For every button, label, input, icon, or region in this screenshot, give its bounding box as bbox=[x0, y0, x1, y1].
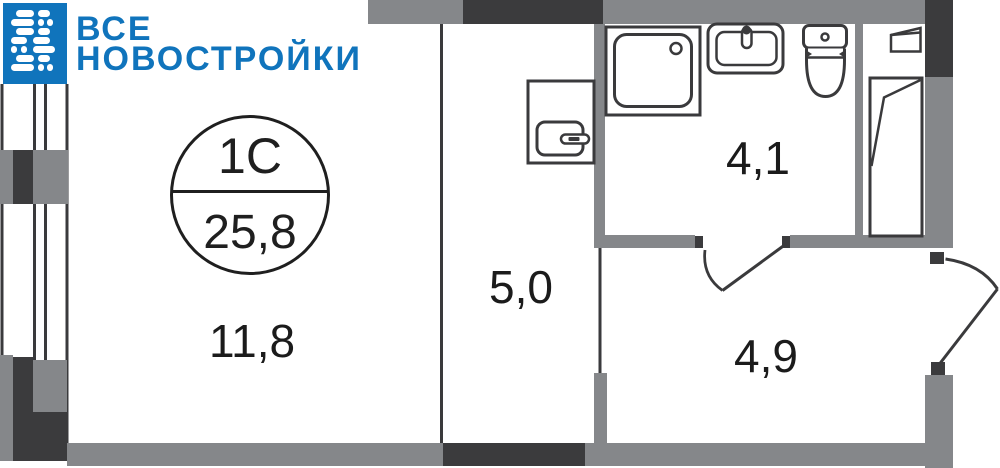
brand-name-line2: НОВОСТРОЙКИ bbox=[76, 44, 362, 74]
wall-segment bbox=[594, 373, 607, 443]
apartment-total-area: 25,8 bbox=[173, 193, 327, 272]
door-jamb bbox=[930, 252, 944, 264]
door-arc bbox=[946, 259, 998, 289]
wall-segment bbox=[603, 0, 925, 24]
door-arc bbox=[705, 250, 723, 291]
wall-segment bbox=[33, 150, 68, 204]
building-logo-icon bbox=[3, 3, 67, 84]
wall-segment bbox=[13, 150, 33, 204]
room-door-swing-icon bbox=[705, 244, 786, 291]
wall-corner-block bbox=[925, 0, 953, 77]
wardrobe-doors-icon bbox=[870, 28, 922, 236]
washbasin-icon bbox=[708, 24, 783, 73]
room-area-living: 11,8 bbox=[209, 314, 295, 368]
entrance-door-swing-icon bbox=[940, 259, 998, 364]
toilet-icon bbox=[804, 26, 847, 97]
door-panel bbox=[891, 28, 921, 52]
wall-segment bbox=[594, 24, 605, 248]
cabinet-faucet-handle bbox=[569, 137, 580, 141]
apartment-type-label: 1С bbox=[173, 118, 327, 190]
toilet-bowl bbox=[807, 49, 845, 97]
wall-segment bbox=[585, 443, 925, 466]
wall-segment bbox=[463, 0, 603, 24]
right-wall bbox=[925, 77, 953, 468]
door-jamb bbox=[931, 362, 945, 375]
room-area-bathroom: 4,1 bbox=[726, 131, 790, 185]
sink-cabinet-icon bbox=[528, 81, 594, 163]
wall-segment bbox=[855, 24, 863, 235]
wall-segment bbox=[925, 375, 953, 468]
wall-segment bbox=[13, 357, 33, 461]
room-area-entry: 4,9 bbox=[734, 329, 798, 383]
faucet-base bbox=[742, 26, 751, 35]
door-jamb bbox=[695, 236, 703, 248]
wall-segment bbox=[0, 150, 13, 204]
wall-segment bbox=[368, 0, 463, 24]
toilet-button bbox=[822, 34, 829, 41]
door-leaf bbox=[940, 289, 998, 364]
door-panel bbox=[870, 78, 922, 236]
shower-drain bbox=[671, 43, 682, 54]
wall-segment bbox=[594, 235, 695, 248]
wall-segment bbox=[0, 355, 13, 461]
door-leaf bbox=[723, 244, 787, 291]
apartment-badge: 1С 25,8 bbox=[170, 115, 330, 275]
floorplan-page: ВСЕ НОВОСТРОЙКИ 1С 25,8 11,8 5,0 4,1 4,9 bbox=[0, 0, 1000, 468]
wall-segment bbox=[33, 360, 67, 412]
wall-segment bbox=[925, 77, 953, 248]
wall-segment bbox=[33, 412, 67, 461]
shower-tray-icon bbox=[606, 27, 700, 115]
wall-segment bbox=[443, 443, 585, 466]
wall-segment bbox=[67, 443, 443, 466]
bottom-wall bbox=[67, 443, 925, 466]
room-area-hallway: 5,0 bbox=[489, 260, 553, 314]
brand-name: ВСЕ НОВОСТРОЙКИ bbox=[76, 14, 362, 74]
